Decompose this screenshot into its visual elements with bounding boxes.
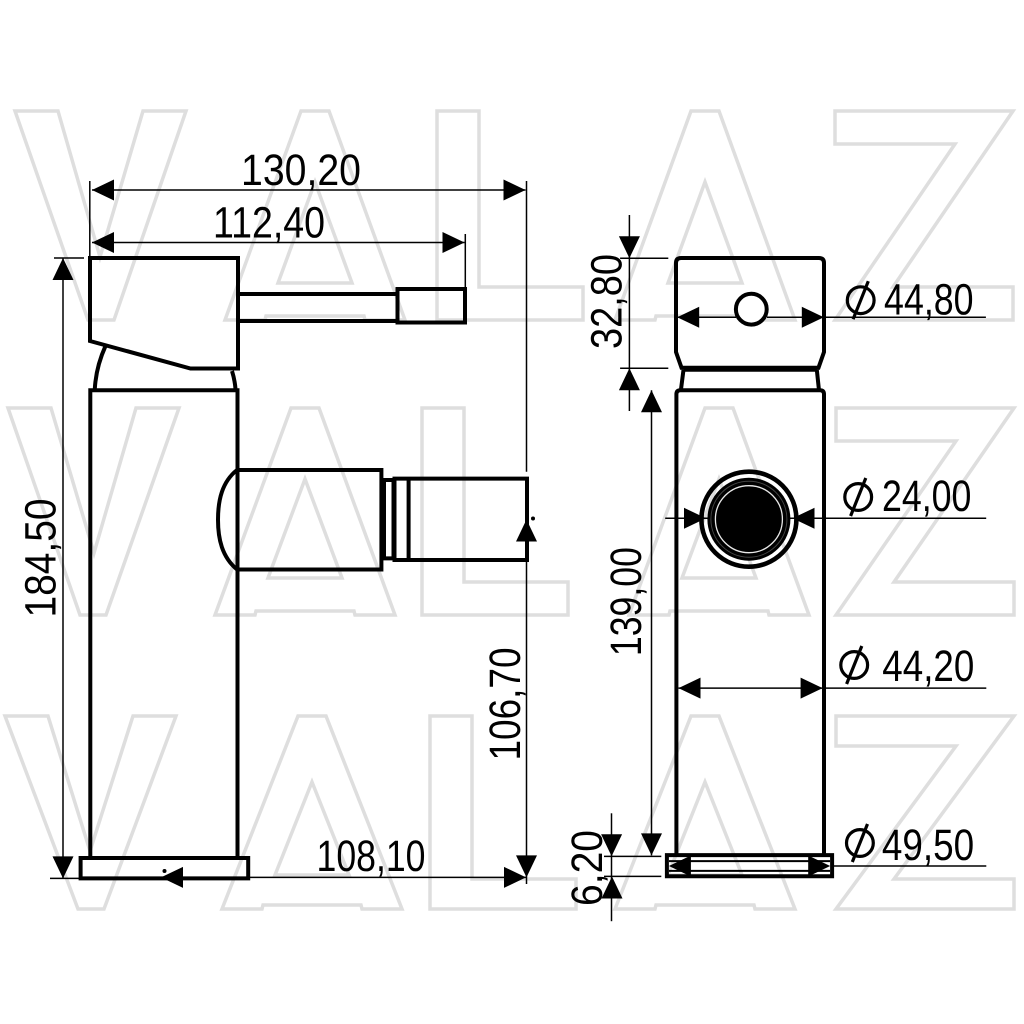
svg-text:112,40: 112,40 xyxy=(213,198,325,247)
svg-text:44,80: 44,80 xyxy=(884,275,974,324)
svg-text:108,10: 108,10 xyxy=(317,832,426,881)
svg-text:106,70: 106,70 xyxy=(481,648,530,761)
svg-text:6,20: 6,20 xyxy=(563,830,612,906)
svg-text:130,20: 130,20 xyxy=(241,146,361,195)
svg-text:44,20: 44,20 xyxy=(882,642,974,691)
svg-text:139,00: 139,00 xyxy=(602,547,651,656)
svg-text:184,50: 184,50 xyxy=(17,499,66,618)
svg-text:24,00: 24,00 xyxy=(882,472,971,521)
svg-text:49,50: 49,50 xyxy=(882,821,974,870)
svg-text:32,80: 32,80 xyxy=(583,254,632,349)
